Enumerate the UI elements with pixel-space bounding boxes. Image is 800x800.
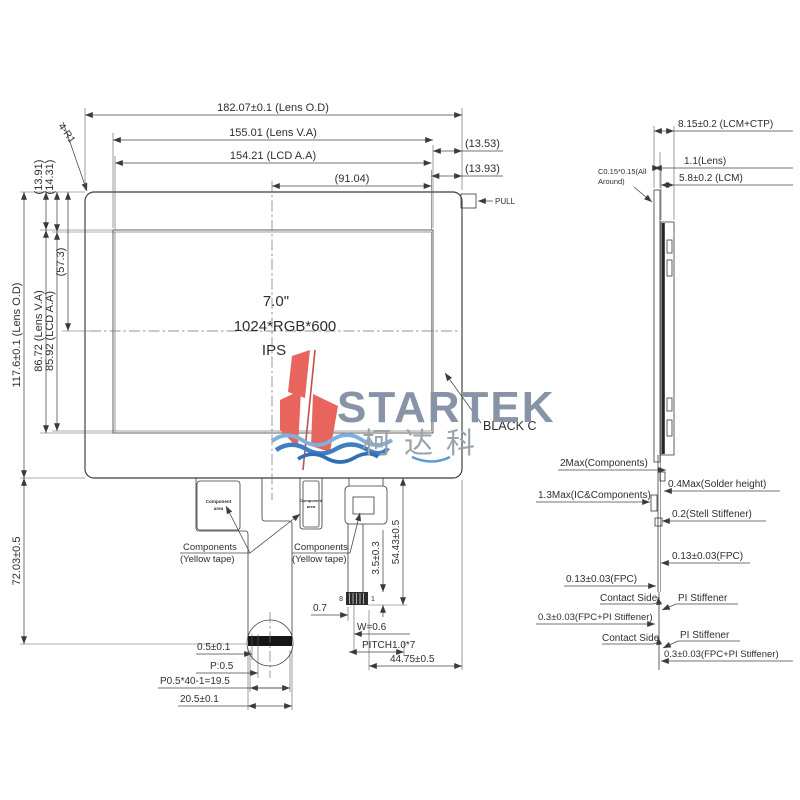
components-tape-label-2-line1: Components — [294, 542, 348, 553]
components-tape-label-2-line2: (Yellow tape) — [292, 554, 347, 565]
dim-contact-total: P0.5*40-1=19.5 — [160, 676, 230, 687]
dim-fpc-width: 44.75±0.5 — [390, 654, 435, 665]
pull-label: PULL — [495, 197, 516, 206]
pin-1-label: 1 — [371, 596, 375, 603]
components-max-label: 2Max(Components) — [560, 458, 648, 469]
logo-sail-upper — [288, 350, 310, 398]
display-size-label: 7.0" — [263, 293, 289, 310]
dim-contact-pitch: P:0.5 — [210, 661, 234, 672]
side-lens-layer — [654, 190, 660, 462]
contact-side-label-2: Contact Side — [602, 633, 660, 644]
touch-fpc-tail: 8 1 0.7 W=0.6 PITCH1.0*7 44.75±0.5 3.5±0… — [311, 478, 462, 670]
startek-logo: STARTEK 柯达科 — [272, 350, 556, 470]
fpc-pi-left-label: 0.3±0.03(FPC+PI Stiffener) — [538, 612, 653, 623]
dim-right-margin-aa: (13.93) — [465, 163, 500, 175]
solder-height-label: 0.4Max(Solder height) — [668, 479, 766, 490]
corner-radius-label: 4-R1 — [56, 121, 78, 145]
dim-total-thickness: 8.15±0.2 (LCM+CTP) — [678, 119, 773, 130]
dim-lens-va-width: 155.01 (Lens V.A) — [229, 127, 317, 139]
pull-tab — [461, 194, 476, 208]
dim-fpc-length: 72.03±0.5 — [11, 537, 23, 586]
mechanical-drawing-sheet: PULL 7.0" 1024*RGB*600 IPS BLACK C 4-R1 … — [0, 0, 800, 800]
resolution-label: 1024*RGB*600 — [234, 318, 337, 335]
component-area-1-line2: area — [214, 506, 224, 511]
dim-right-margin-va: (13.53) — [465, 138, 500, 150]
logo-cjk-text: 柯达科 — [362, 427, 488, 460]
dim-lcm-thickness: 5.8±0.2 (LCM) — [679, 173, 743, 184]
side-view: 8.15±0.2 (LCM+CTP) 1.1(Lens) 5.8±0.2 (LC… — [536, 119, 793, 670]
dim-lens-od-height: 117.6±0.1 (Lens O.D) — [11, 283, 23, 388]
side-steel-stiffener — [655, 518, 662, 526]
front-top-dimensions: 182.07±0.1 (Lens O.D) 155.01 (Lens V.A) … — [85, 102, 503, 230]
lcd-outline-drawing: PULL 7.0" 1024*RGB*600 IPS BLACK C 4-R1 … — [0, 0, 800, 800]
dim-lens-od-width: 182.07±0.1 (Lens O.D) — [217, 102, 329, 114]
dim-lens-thickness: 1.1(Lens) — [684, 156, 726, 167]
dim-tail-width: 20.5±0.1 — [180, 694, 219, 705]
dim-half-height: (57.3) — [55, 248, 67, 277]
dim-lcd-aa-width: 154.21 (LCD A.A) — [230, 150, 316, 162]
fpc-pi-right-label: 0.3±0.03(FPC+PI Stiffener) — [664, 649, 779, 660]
component-area-2-line2: area — [307, 504, 316, 509]
dim-lcd-aa-height: 85.92 (LCD A.A) — [44, 291, 56, 371]
dim-top-margin-aa: (14.31) — [44, 160, 56, 195]
steel-stiffener-label: 0.2(Stell Stiffener) — [672, 509, 752, 520]
fpc-thickness-right-label: 0.13±0.03(FPC) — [672, 551, 743, 562]
components-tape-label-1-line1: Components — [183, 542, 237, 553]
component-area-2-line1: Component — [300, 498, 323, 503]
component-area-1-line1: Component — [206, 499, 232, 504]
pi-stiffener-label-1: PI Stiffener — [678, 593, 728, 604]
dim-contact-margin: 0.5±0.1 — [197, 642, 231, 653]
ic-components-label: 1.3Max(IC&Components) — [538, 490, 651, 501]
dim-pin-width: W=0.6 — [357, 622, 387, 633]
pi-stiffener-label-2: PI Stiffener — [680, 630, 730, 641]
main-fpc-tail: Component area Component area Components… — [158, 478, 360, 710]
side-lcm-dark-band — [662, 223, 665, 454]
side-ic-component — [651, 495, 657, 511]
components-tape-label-1-line2: (Yellow tape) — [180, 554, 235, 565]
touch-component — [353, 497, 374, 514]
panel-mode-label: IPS — [262, 342, 286, 359]
contact-side-label-1: Contact Side — [600, 593, 658, 604]
chamfer-label-line1: C0.15*0.15(All — [598, 167, 647, 176]
dim-pitch7: PITCH1.0*7 — [362, 640, 416, 651]
dim-half-width: (91.04) — [335, 173, 370, 185]
dim-connector-offset: 0.7 — [313, 603, 327, 614]
dim-connector-height: 3.5±0.3 — [371, 541, 382, 575]
pin-8-label: 8 — [339, 596, 343, 603]
chamfer-label-line2: Around) — [598, 177, 625, 186]
fpc-thickness-left-label: 0.13±0.03(FPC) — [566, 574, 637, 585]
logo-brand-text: STARTEK — [337, 383, 556, 432]
dim-connector-length: 54.43±0.5 — [391, 519, 402, 564]
touch-fpc-component-block — [345, 486, 387, 524]
